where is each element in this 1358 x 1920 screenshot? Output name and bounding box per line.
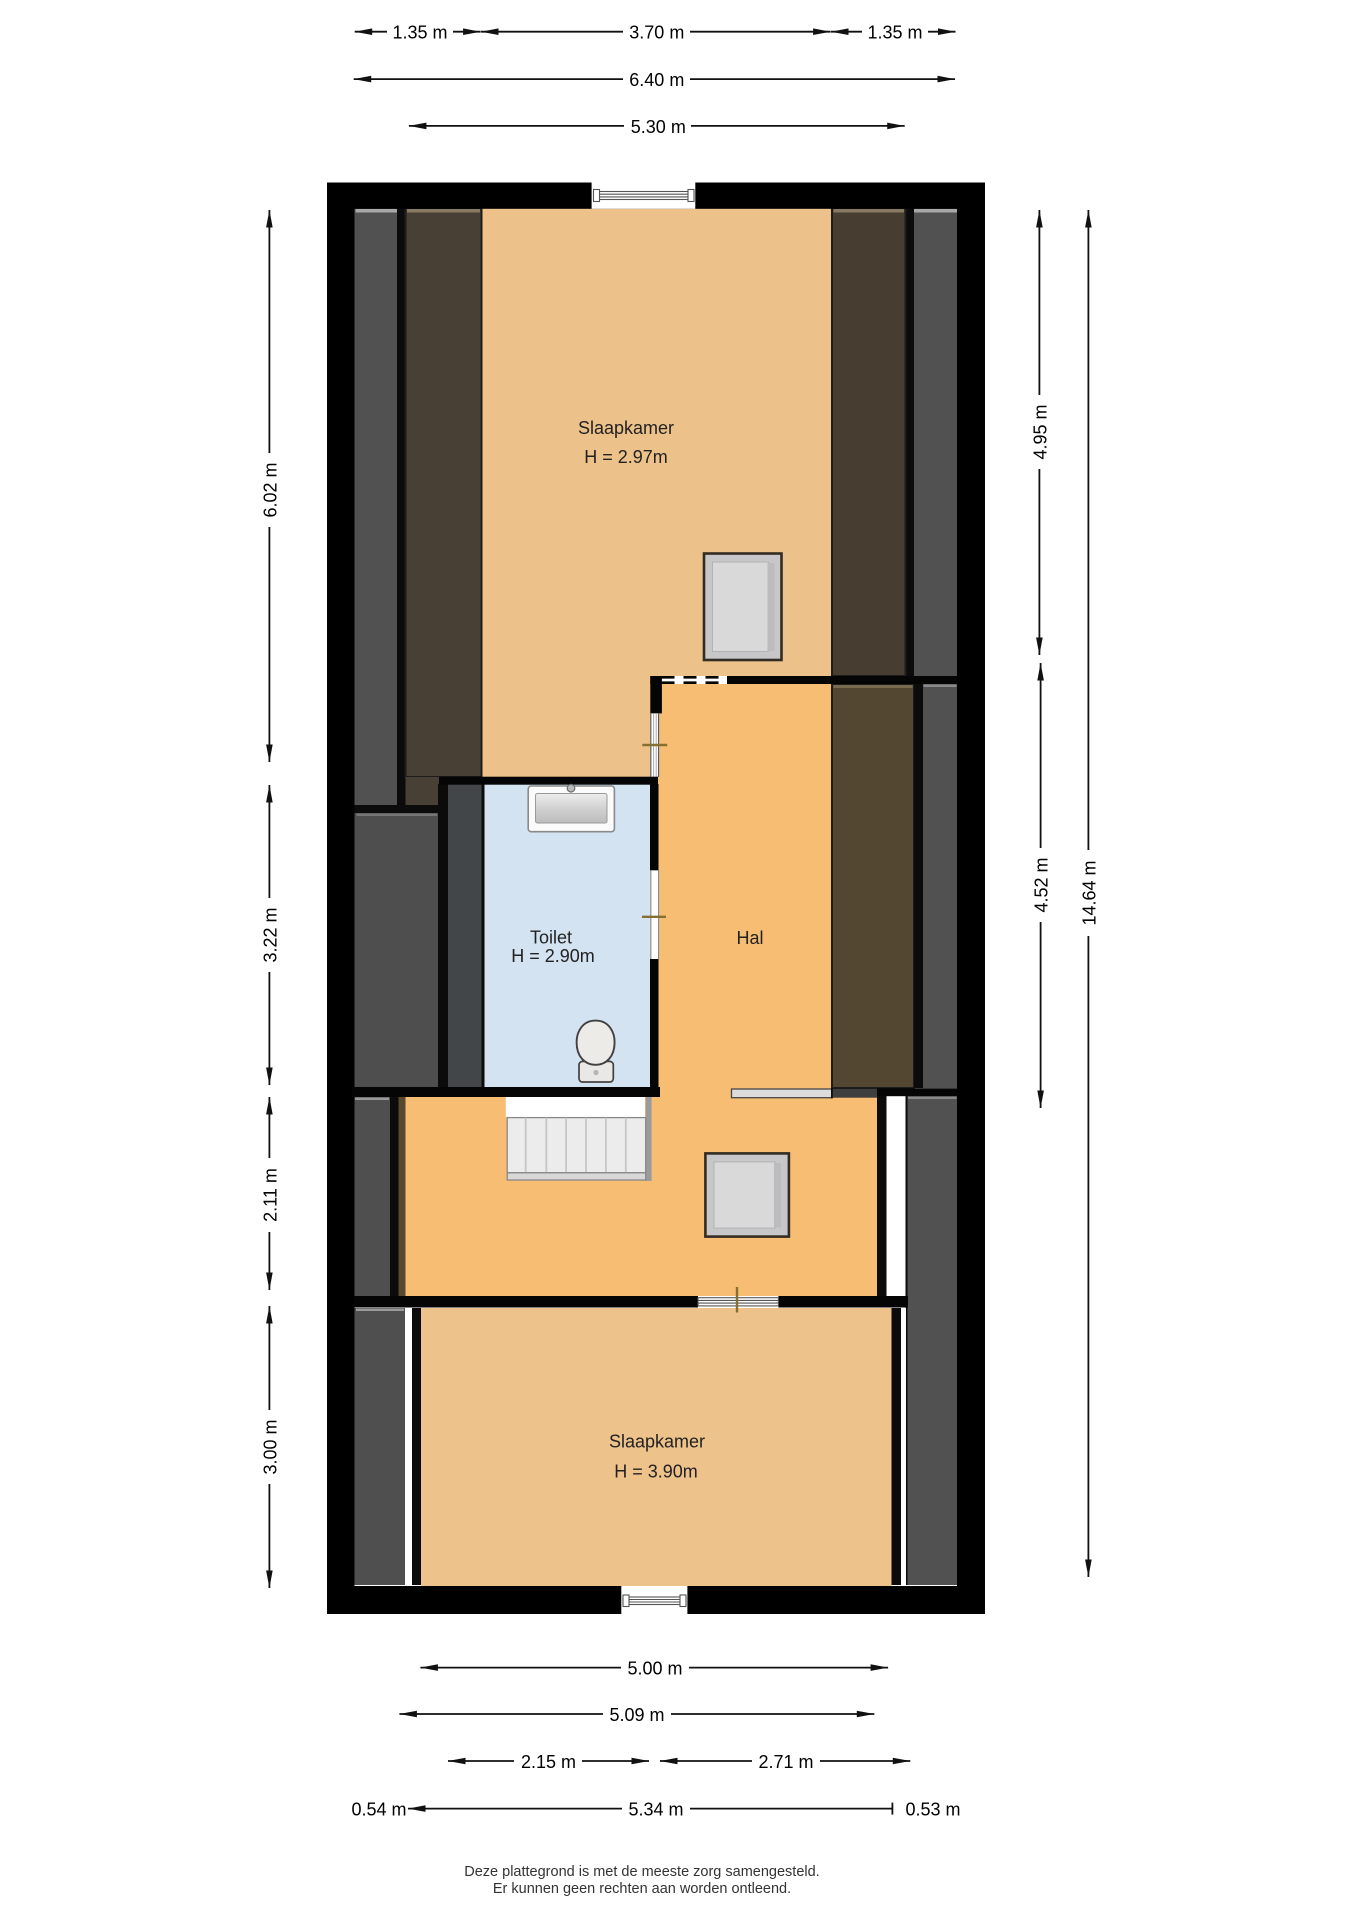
svg-text:3.00 m: 3.00 m — [260, 1419, 280, 1474]
svg-text:5.09 m: 5.09 m — [609, 1705, 664, 1725]
svg-text:0.53 m: 0.53 m — [905, 1800, 960, 1820]
svg-text:Slaapkamer: Slaapkamer — [578, 418, 674, 438]
svg-text:Toilet: Toilet — [530, 928, 572, 948]
svg-text:6.40 m: 6.40 m — [629, 70, 684, 90]
svg-text:Hal: Hal — [736, 928, 763, 948]
svg-text:0.54 m: 0.54 m — [351, 1800, 406, 1820]
svg-text:1.35 m: 1.35 m — [867, 23, 922, 43]
svg-text:3.22 m: 3.22 m — [260, 907, 280, 962]
svg-text:Deze plattegrond is met de mee: Deze plattegrond is met de meeste zorg s… — [464, 1864, 819, 1880]
svg-text:5.34 m: 5.34 m — [628, 1800, 683, 1820]
svg-text:2.71 m: 2.71 m — [758, 1752, 813, 1772]
svg-text:5.00 m: 5.00 m — [627, 1659, 682, 1679]
svg-text:Er kunnen geen rechten aan wor: Er kunnen geen rechten aan worden ontlee… — [493, 1881, 791, 1897]
svg-text:2.15 m: 2.15 m — [521, 1752, 576, 1772]
svg-text:14.64 m: 14.64 m — [1079, 860, 1099, 925]
svg-text:H = 2.97m: H = 2.97m — [584, 447, 668, 467]
svg-text:H = 2.90m: H = 2.90m — [511, 946, 595, 966]
svg-text:6.02 m: 6.02 m — [260, 462, 280, 517]
svg-text:5.30 m: 5.30 m — [631, 117, 686, 137]
svg-text:Slaapkamer: Slaapkamer — [609, 1432, 705, 1452]
svg-text:1.35 m: 1.35 m — [392, 23, 447, 43]
svg-text:2.11 m: 2.11 m — [260, 1168, 280, 1222]
svg-text:4.52 m: 4.52 m — [1032, 857, 1052, 912]
svg-text:4.95 m: 4.95 m — [1030, 404, 1050, 459]
svg-text:H = 3.90m: H = 3.90m — [614, 1462, 698, 1482]
svg-text:3.70 m: 3.70 m — [629, 23, 684, 43]
